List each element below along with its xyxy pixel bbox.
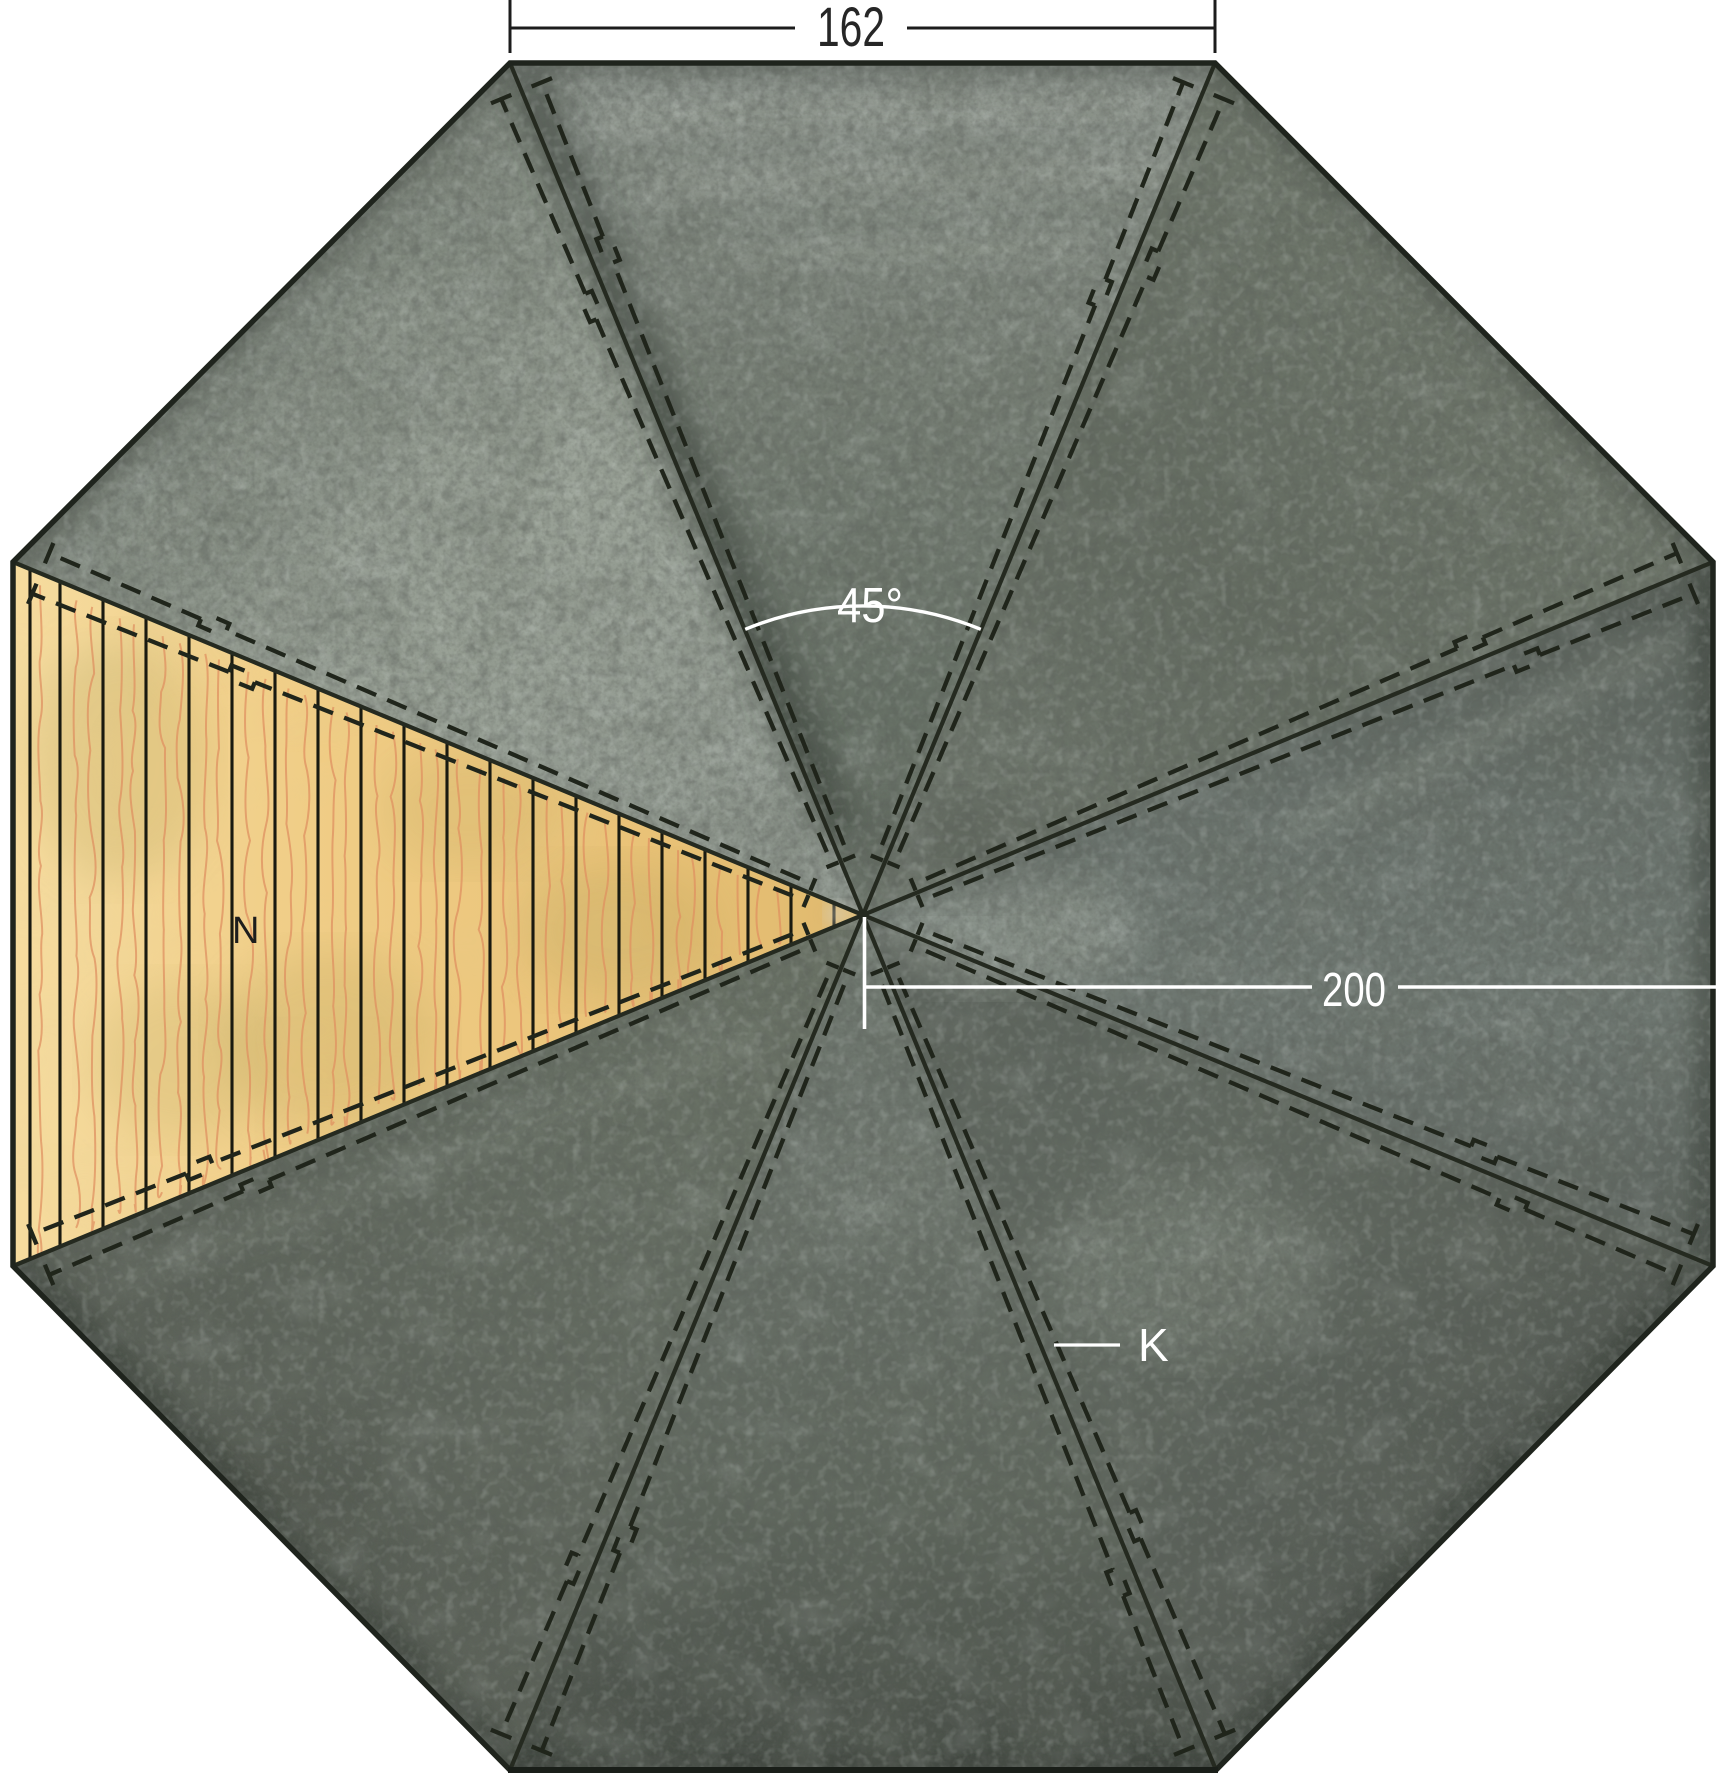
svg-text:N: N (232, 910, 259, 952)
svg-text:45°: 45° (837, 579, 903, 633)
svg-text:162: 162 (817, 0, 885, 58)
svg-text:200: 200 (1322, 964, 1386, 1017)
svg-text:K: K (1138, 1319, 1169, 1371)
